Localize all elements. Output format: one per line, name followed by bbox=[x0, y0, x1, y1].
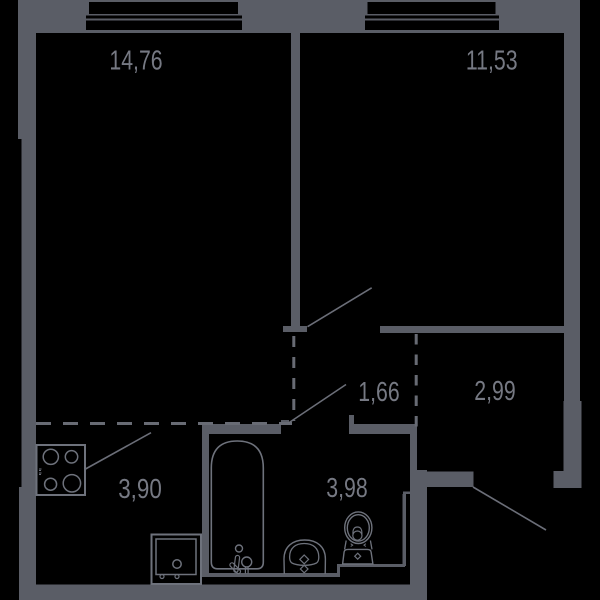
svg-text:11,53: 11,53 bbox=[466, 45, 518, 77]
svg-text:3,98: 3,98 bbox=[326, 472, 367, 504]
svg-text:3,90: 3,90 bbox=[118, 474, 162, 505]
svg-text:1,66: 1,66 bbox=[358, 376, 399, 408]
svg-text:2,99: 2,99 bbox=[474, 375, 515, 407]
svg-text:14,76: 14,76 bbox=[109, 45, 162, 77]
